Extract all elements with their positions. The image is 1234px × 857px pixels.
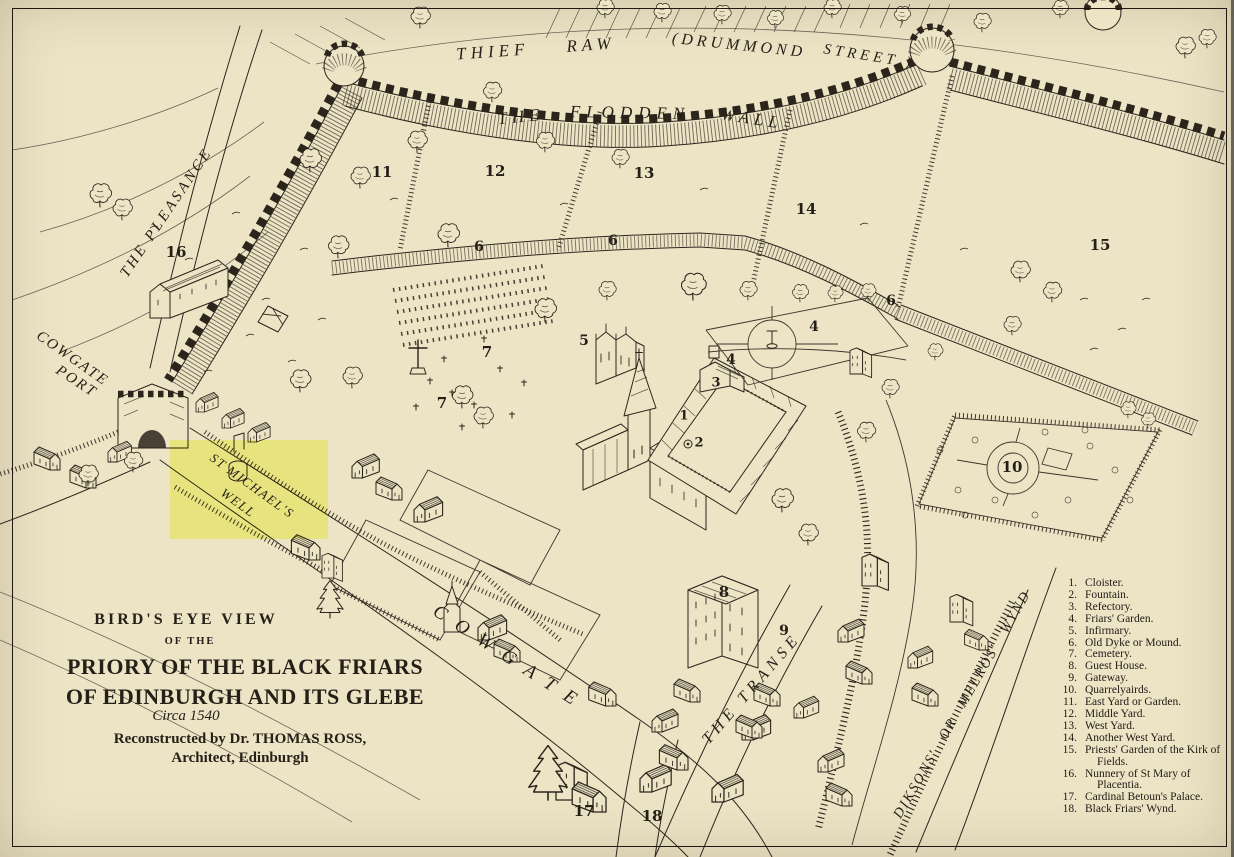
map-number: 3 <box>711 376 720 391</box>
map-number: 6 <box>886 293 896 309</box>
legend-text: Friars' Garden. <box>1085 614 1154 626</box>
label-flodden: FLODDEN <box>570 102 691 124</box>
title-line-5: Circa 1540 <box>152 708 219 725</box>
legend-item: 3.Refectory. <box>1052 602 1224 614</box>
legend-number: 5. <box>1052 626 1077 638</box>
map-number: 7 <box>482 343 492 361</box>
title-line-1: BIRD'S EYE VIEW <box>94 611 277 629</box>
map-number: 2 <box>694 436 703 451</box>
map-number: 7 <box>437 394 447 412</box>
legend-text: Refectory. <box>1085 602 1132 614</box>
legend-text: Nunnery of St Mary of Placentia. <box>1085 769 1224 793</box>
legend-number: 3. <box>1052 602 1077 614</box>
title-line-7: Architect, Edinburgh <box>171 750 308 767</box>
cemetery <box>393 266 553 430</box>
legend-item: 2.Fountain. <box>1052 590 1224 602</box>
legend-number: 16. <box>1052 769 1077 781</box>
refectory-building <box>700 362 744 392</box>
legend-number: 15. <box>1052 745 1077 757</box>
legend-item: 6.Old Dyke or Mound. <box>1052 638 1224 650</box>
flodden-wall <box>168 58 1224 394</box>
legend-item: 18.Black Friars' Wynd. <box>1052 804 1224 816</box>
legend-item: 8.Guest House. <box>1052 661 1224 673</box>
legend-text: Black Friars' Wynd. <box>1085 804 1177 816</box>
legend-number: 18. <box>1052 804 1077 816</box>
map-number: 12 <box>485 162 506 180</box>
map-number: 5 <box>579 333 589 349</box>
map-number: 16 <box>166 243 187 261</box>
legend-item: 14.Another West Yard. <box>1052 733 1224 745</box>
map-number: 8 <box>719 583 729 601</box>
legend-item: 16.Nunnery of St Mary of Placentia. <box>1052 769 1224 793</box>
map-number: 10 <box>1002 458 1023 476</box>
legend-text: West Yard. <box>1085 721 1135 733</box>
legend-text: Priests' Garden of the Kirk of Fields. <box>1085 745 1224 769</box>
streets <box>0 428 1056 857</box>
nunnery <box>150 260 288 332</box>
legend-text: Another West Yard. <box>1085 733 1175 745</box>
map-number: 13 <box>634 164 655 182</box>
map-number: 15 <box>1090 236 1111 254</box>
legend-text: Infirmary. <box>1085 626 1131 638</box>
engraving-artwork <box>0 0 1234 857</box>
legend-item: 4.Friars' Garden. <box>1052 614 1224 626</box>
map-number: 4 <box>726 352 736 368</box>
cowgate-port-gate <box>0 384 188 474</box>
map-number: 6 <box>608 233 618 249</box>
legend-item: 1.Cloister. <box>1052 578 1224 590</box>
legend: 1.Cloister. 2.Fountain. 3.Refectory. 4.F… <box>1052 578 1224 816</box>
map-number: 4 <box>809 319 819 335</box>
title-line-3: PRIORY OF THE BLACK FRIARS <box>67 654 423 680</box>
map-number: 11 <box>372 163 393 181</box>
legend-number: 4. <box>1052 614 1077 626</box>
map-page: THIEF RAW (DRUMMOND STREET ) THE FLODDEN… <box>0 0 1234 857</box>
map-number: 9 <box>779 623 789 639</box>
legend-item: 12.Middle Yard. <box>1052 709 1224 721</box>
east-boundary <box>818 400 916 845</box>
legend-number: 13. <box>1052 721 1077 733</box>
title-line-4: OF EDINBURGH AND ITS GLEBE <box>66 684 424 710</box>
map-number: 14 <box>796 200 817 218</box>
quarrelyairds-garden <box>917 415 1160 540</box>
title-line-6: Reconstructed by Dr. THOMAS ROSS, <box>114 731 367 748</box>
map-number: 1 <box>679 409 688 424</box>
legend-item: 13.West Yard. <box>1052 721 1224 733</box>
title-line-2: OF THE <box>165 636 216 647</box>
legend-item: 5.Infirmary. <box>1052 626 1224 638</box>
map-number: 17 <box>574 802 595 820</box>
map-number: 18 <box>642 807 663 825</box>
map-number: 6 <box>474 239 484 255</box>
legend-item: 15.Priests' Garden of the Kirk of Fields… <box>1052 745 1224 769</box>
legend-number: 14. <box>1052 733 1077 745</box>
